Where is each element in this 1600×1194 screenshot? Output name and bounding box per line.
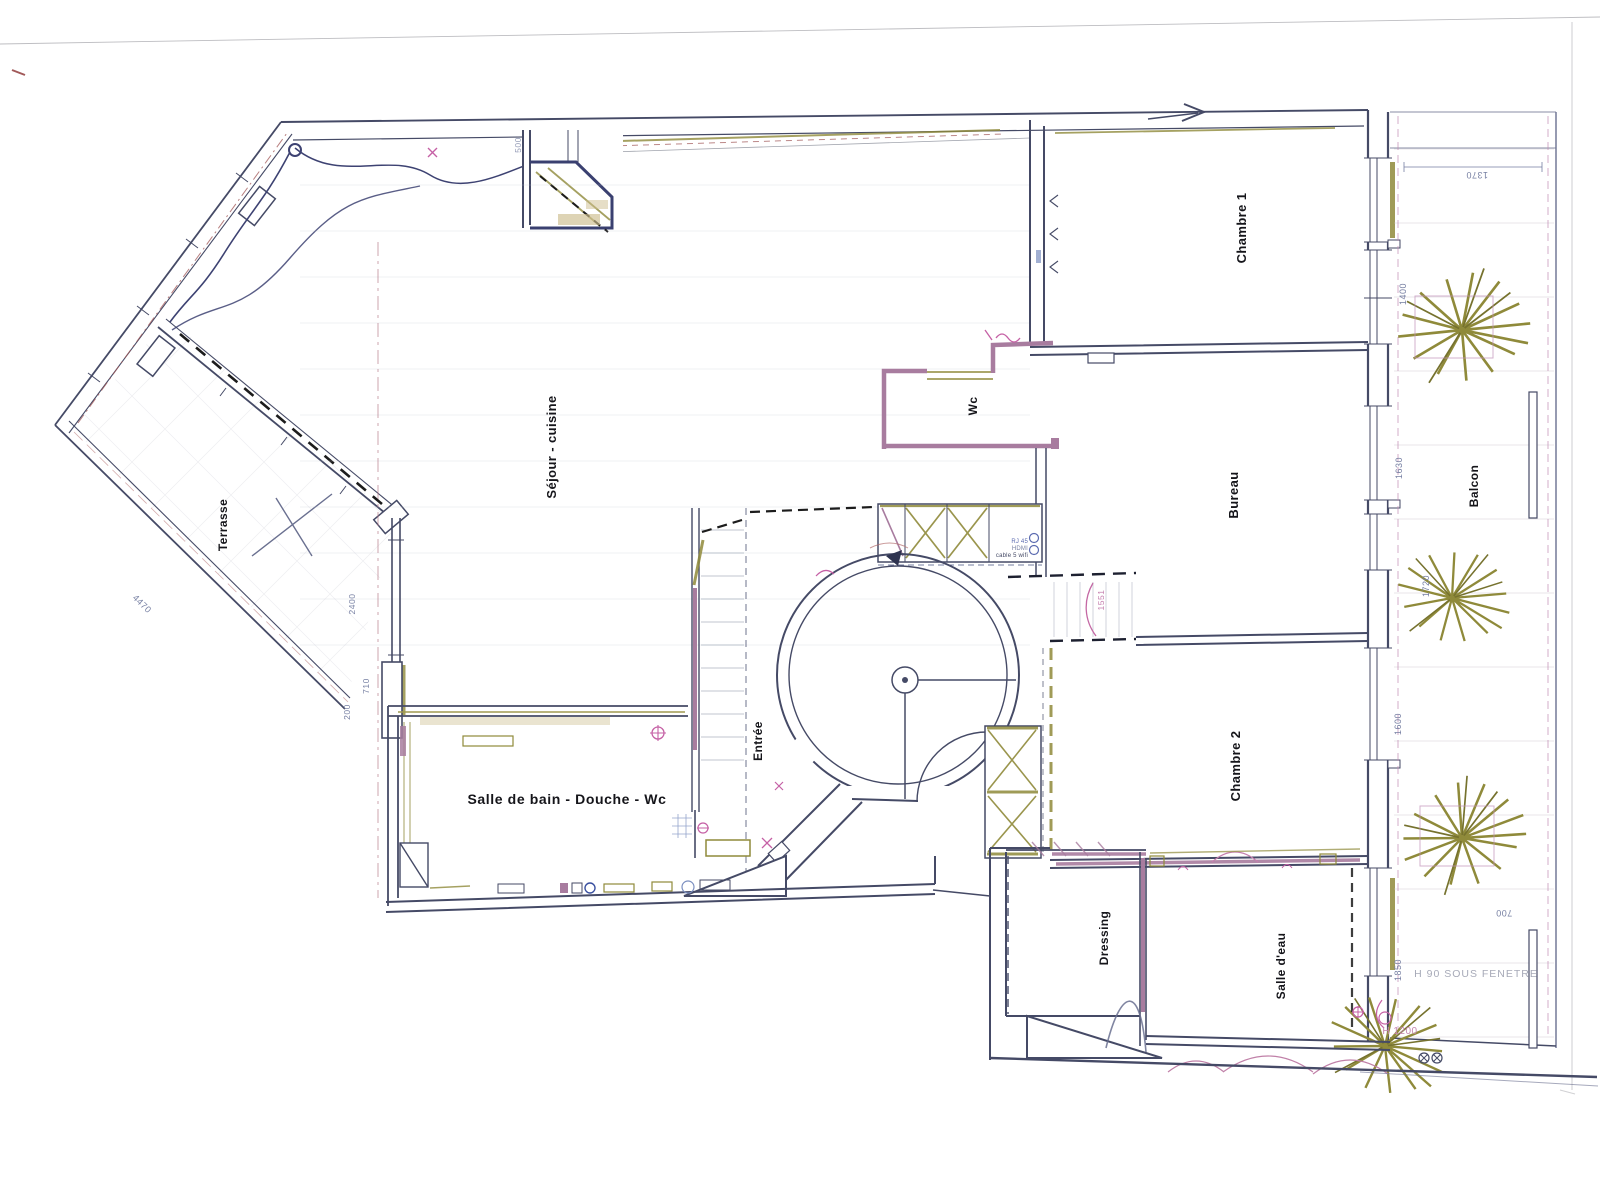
room-label-sejour: Séjour - cuisine	[544, 395, 559, 498]
hall-closet	[985, 726, 1041, 858]
dim-1551: 1551	[1096, 590, 1106, 611]
balcon-area: 1370 Balcon H 90 SOUS FENETRE 700	[1311, 112, 1556, 1119]
dim-710: 710	[361, 678, 371, 694]
dim-1630: 1630	[1394, 457, 1404, 479]
chambre2-area: Chambre 2	[1043, 648, 1368, 870]
chambre1-area: Chambre 1	[1030, 120, 1368, 363]
dim-1400: 1400	[1398, 283, 1408, 305]
dim-500: 500	[513, 137, 523, 153]
room-label-salle-eau: Salle d'eau	[1274, 933, 1288, 1000]
drain-icon	[1419, 1053, 1442, 1063]
plumbing-icon	[697, 823, 709, 833]
annotation-cable: cable 5 wifi	[996, 553, 1028, 559]
annotation-h90: H 90 SOUS FENETRE	[1414, 968, 1538, 980]
floor-plan: Terrasse 4470 500 Séjour - cuisine 2400 …	[0, 0, 1600, 1194]
room-label-bureau: Bureau	[1226, 471, 1241, 518]
room-label-chambre2: Chambre 2	[1228, 731, 1243, 802]
room-label-chambre1: Chambre 1	[1234, 193, 1249, 264]
room-label-balcon: Balcon	[1467, 465, 1481, 507]
dim-1600: 1600	[1393, 713, 1403, 735]
room-label-dressing: Dressing	[1097, 911, 1111, 966]
dim-1850: 1850	[1393, 959, 1403, 981]
entry-closet: RJ 45 HDMI cable 5 wifi	[878, 504, 1042, 565]
room-label-wc: Wc	[966, 397, 980, 416]
dim-700: 700	[1496, 908, 1513, 918]
dim-200: 200	[342, 704, 352, 720]
dim-2400: 2400	[347, 594, 357, 615]
dim-1720: 1720	[1421, 575, 1431, 597]
room-label-salle-de-bain: Salle de bain - Douche - Wc	[467, 791, 666, 807]
annotation-rj45: RJ 45	[1011, 539, 1028, 545]
room-label-terrasse: Terrasse	[216, 499, 230, 551]
room-label-entree: Entrée	[751, 721, 765, 761]
annotation-h1200: H 1200	[1382, 1026, 1417, 1037]
annotation-hdmi: HDMI	[1012, 546, 1028, 552]
bureau-area: 1551 Bureau	[1008, 471, 1368, 645]
dim-4470: 4470	[131, 593, 154, 615]
plumbing-icon	[650, 725, 666, 741]
dim-1370: 1370	[1466, 170, 1488, 180]
floor-plan-svg: Terrasse 4470 500 Séjour - cuisine 2400 …	[0, 0, 1600, 1194]
